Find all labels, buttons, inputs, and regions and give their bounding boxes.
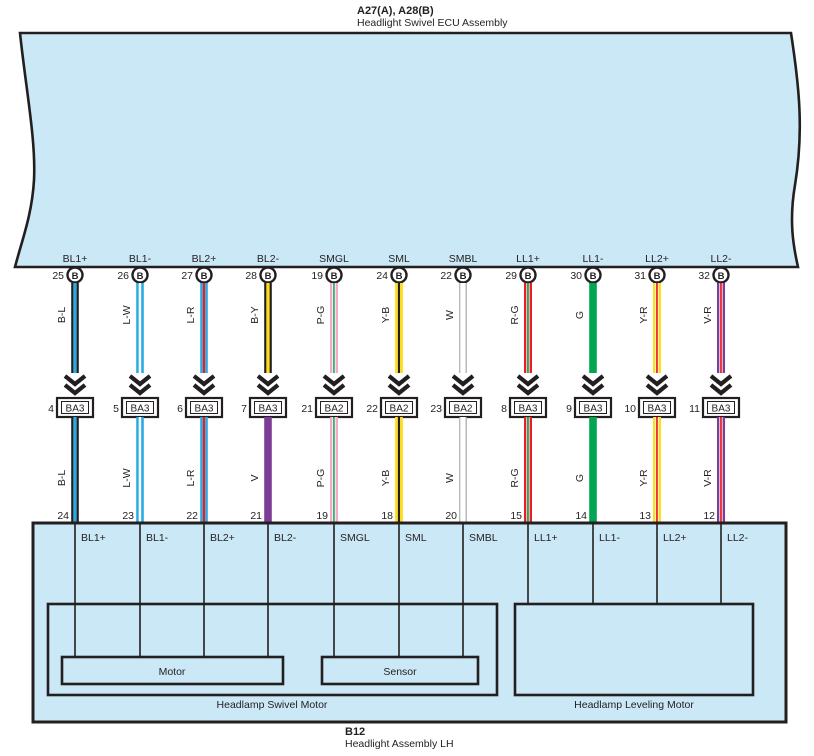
wire-upper-segment xyxy=(139,283,141,380)
wire-upper-segment xyxy=(653,283,655,380)
wire-lower-segment xyxy=(722,417,723,524)
ecu-pin-letter: B xyxy=(265,271,272,282)
wire-upper-segment xyxy=(658,283,659,380)
assembly-pin-number: 19 xyxy=(316,510,328,522)
wire-upper-segment xyxy=(71,283,73,380)
wire-color-code-upper: Y-B xyxy=(380,307,392,324)
inline-connector-pin: 4 xyxy=(48,403,54,415)
inline-connector-label: BA3 xyxy=(66,404,85,415)
ecu-assembly-title: Headlight Swivel ECU Assembly xyxy=(357,17,508,29)
ecu-pin-letter: B xyxy=(525,271,532,282)
wire-lower-segment xyxy=(530,417,532,524)
assembly-pin-number: 14 xyxy=(575,510,587,522)
inline-connector-pin: 5 xyxy=(113,403,119,415)
ecu-pin-letter: B xyxy=(654,271,661,282)
wire-upper-segment xyxy=(136,283,139,380)
ecu-pin-number: 24 xyxy=(376,270,388,282)
wire-color-code-lower: R-G xyxy=(509,468,521,487)
wire-color-code-upper: P-G xyxy=(315,306,327,325)
wire-color-code-upper: G xyxy=(574,311,586,319)
motor-label: Motor xyxy=(159,666,186,678)
wire-upper-segment xyxy=(655,283,656,380)
wire-lower-segment xyxy=(336,417,338,524)
wire-color-code-lower: Y-B xyxy=(380,470,392,487)
assembly-pin-number: 20 xyxy=(445,510,457,522)
inline-connector-label: BA3 xyxy=(712,404,731,415)
wire-lower-segment xyxy=(400,417,403,524)
wire-upper-segment xyxy=(264,283,266,380)
ecu-pin-number: 25 xyxy=(52,270,64,282)
wire-lower-segment xyxy=(335,417,336,524)
assembly-pin-number: 13 xyxy=(639,510,651,522)
ecu-signal-label: BL1+ xyxy=(63,253,88,265)
wire-color-code-lower: P-G xyxy=(315,469,327,488)
assembly-cell-label: BL2+ xyxy=(210,532,235,544)
wire-upper-segment xyxy=(400,283,403,380)
ecu-pin-number: 26 xyxy=(117,270,129,282)
wiring-diagram-page: A27(A), A28(B) Headlight Swivel ECU Asse… xyxy=(0,0,814,756)
inline-connector-label: BA2 xyxy=(454,404,473,415)
wire-upper-segment xyxy=(717,283,719,380)
wiring-diagram-canvas: A27(A), A28(B) Headlight Swivel ECU Asse… xyxy=(0,0,814,756)
wire-lower-segment xyxy=(529,417,530,524)
ecu-pin-number: 31 xyxy=(634,270,646,282)
wire-lower-segment xyxy=(526,417,527,524)
ecu-signal-label: SMBL xyxy=(449,253,478,265)
wire-upper-segment xyxy=(203,283,205,380)
wire-lower-segment xyxy=(333,417,335,524)
wire-color-code-upper: R-G xyxy=(509,305,521,324)
wire-color-code-upper: V-R xyxy=(702,306,714,324)
assembly-cell-label: LL2- xyxy=(727,532,749,544)
wire-upper-segment xyxy=(723,283,725,380)
wire-upper-segment xyxy=(270,283,272,380)
wire-upper-segment xyxy=(526,283,527,380)
wire-lower-segment xyxy=(589,417,597,524)
inline-connector-pin: 23 xyxy=(430,403,442,415)
wire-upper-segment xyxy=(527,283,529,380)
inline-connector-pin: 10 xyxy=(624,403,636,415)
assembly-cell-label: SML xyxy=(405,532,427,544)
wire-color-code-lower: Y-R xyxy=(638,469,650,487)
leveling-motor-label: Headlamp Leveling Motor xyxy=(574,699,694,711)
wire-color-code-lower: L-R xyxy=(185,469,197,486)
wire-lower-segment xyxy=(466,417,467,524)
inline-connector-label: BA3 xyxy=(519,404,538,415)
wire-lower-segment xyxy=(723,417,725,524)
wire-lower-segment xyxy=(460,417,465,524)
wire-color-code-upper: B-L xyxy=(56,307,68,324)
ecu-pin-letter: B xyxy=(72,271,79,282)
ecu-connector-code: A27(A), A28(B) xyxy=(357,5,434,17)
assembly-pin-number: 23 xyxy=(122,510,134,522)
wire-column-BL1-: BL1-26BL-W5BA3L-W23 xyxy=(113,253,158,524)
wire-upper-segment xyxy=(77,283,79,380)
wire-column-LL1-: LL1-30BG9BA3G14 xyxy=(566,253,611,524)
wire-upper-segment xyxy=(205,283,208,380)
ecu-signal-label: SML xyxy=(388,253,410,265)
ecu-signal-label: LL2- xyxy=(710,253,732,265)
wire-lower-segment xyxy=(332,417,333,524)
ecu-pin-letter: B xyxy=(396,271,403,282)
wire-color-code-upper: L-W xyxy=(121,305,133,324)
sensor-label: Sensor xyxy=(383,666,417,678)
ecu-pin-letter: B xyxy=(331,271,338,282)
wire-column-LL2-: LL2-32BV-R11BA3V-R12 xyxy=(689,253,739,524)
wire-column-SMBL: SMBL22BW23BA2W20 xyxy=(430,253,481,524)
wire-lower-segment xyxy=(719,417,720,524)
wire-upper-segment xyxy=(460,283,465,380)
wire-lower-segment xyxy=(136,417,139,524)
wire-column-BL2+: BL2+27BL-R6BA3L-R22 xyxy=(177,253,222,524)
inline-connector-pin: 11 xyxy=(689,403,700,415)
wire-color-code-lower: V xyxy=(249,474,261,481)
ecu-pin-number: 28 xyxy=(245,270,257,282)
wire-column-SML: SML24BY-B22BA2Y-B18 xyxy=(366,253,417,524)
wire-lower-segment xyxy=(398,417,400,524)
ecu-signal-label: BL2- xyxy=(257,253,280,265)
assembly-cell-label: LL1- xyxy=(599,532,621,544)
wire-lower-segment xyxy=(720,417,722,524)
ecu-pin-number: 19 xyxy=(311,270,323,282)
assembly-cell-label: LL2+ xyxy=(663,532,687,544)
wire-upper-segment xyxy=(330,283,332,380)
wire-lower-segment xyxy=(524,417,526,524)
headlight-assembly-box xyxy=(33,523,786,722)
wire-lower-segment xyxy=(205,417,208,524)
assembly-title: Headlight Assembly LH xyxy=(345,738,454,750)
wire-lower-segment xyxy=(141,417,144,524)
wire-lower-segment xyxy=(77,417,79,524)
wire-lower-segment xyxy=(659,417,661,524)
wire-lower-segment xyxy=(73,417,76,524)
wire-column-SMGL: SMGL19BP-G21BA2P-G19 xyxy=(301,253,352,524)
assembly-connector-code: B12 xyxy=(345,726,365,738)
ecu-signal-label: LL1- xyxy=(582,253,604,265)
inline-connector-label: BA2 xyxy=(390,404,409,415)
wire-upper-segment xyxy=(398,283,400,380)
wire-column-BL2-: BL2-28BB-Y7BA3V21 xyxy=(241,253,286,524)
wire-upper-segment xyxy=(722,283,723,380)
swivel-motor-label: Headlamp Swivel Motor xyxy=(217,699,328,711)
assembly-cell-label: SMGL xyxy=(340,532,370,544)
wire-lower-segment xyxy=(330,417,332,524)
ecu-signal-label: BL2+ xyxy=(192,253,217,265)
wire-upper-segment xyxy=(719,283,720,380)
inline-connector-label: BA3 xyxy=(259,404,278,415)
wire-column-BL1+: BL1+25BB-L4BA3B-L24 xyxy=(48,253,93,524)
wire-upper-segment xyxy=(459,283,460,380)
inline-connector-label: BA3 xyxy=(131,404,150,415)
wire-upper-segment xyxy=(336,283,338,380)
wire-upper-segment xyxy=(73,283,76,380)
inline-connector-pin: 22 xyxy=(366,403,378,415)
wire-color-code-upper: W xyxy=(444,310,456,320)
wire-lower-segment xyxy=(203,417,205,524)
wire-upper-segment xyxy=(141,283,144,380)
ecu-pin-letter: B xyxy=(590,271,597,282)
inline-connector-pin: 8 xyxy=(501,403,507,415)
ecu-pin-letter: B xyxy=(460,271,467,282)
ecu-pin-letter: B xyxy=(137,271,144,282)
wire-upper-segment xyxy=(720,283,722,380)
wire-lower-segment xyxy=(717,417,719,524)
wire-color-code-upper: B-Y xyxy=(249,306,261,324)
wire-lower-segment xyxy=(527,417,529,524)
ecu-pin-number: 29 xyxy=(505,270,517,282)
wire-column-LL2+: LL2+31BY-R10BA3Y-R13 xyxy=(624,253,675,524)
wire-color-code-lower: L-W xyxy=(121,468,133,487)
wire-column-LL1+: LL1+29BR-G8BA3R-G15 xyxy=(501,253,546,524)
inline-connector-label: BA2 xyxy=(325,404,344,415)
wire-upper-segment xyxy=(395,283,398,380)
ecu-pin-number: 22 xyxy=(440,270,452,282)
assembly-cell-label: BL2- xyxy=(274,532,297,544)
inline-connector-label: BA3 xyxy=(648,404,667,415)
assembly-cell-label: LL1+ xyxy=(534,532,558,544)
wire-upper-segment xyxy=(466,283,467,380)
wire-upper-segment xyxy=(332,283,333,380)
inline-connector-label: BA3 xyxy=(195,404,214,415)
assembly-cell-label: BL1- xyxy=(146,532,169,544)
wire-lower-segment xyxy=(653,417,655,524)
wire-color-code-lower: W xyxy=(444,473,456,483)
wire-upper-segment xyxy=(529,283,530,380)
wire-lower-segment xyxy=(655,417,656,524)
wire-color-code-lower: B-L xyxy=(56,470,68,487)
wire-layer: BL1+25BB-L4BA3B-L24BL1-26BL-W5BA3L-W23BL… xyxy=(48,253,739,524)
ecu-signal-label: LL2+ xyxy=(645,253,669,265)
ecu-pin-number: 30 xyxy=(570,270,582,282)
wire-upper-segment xyxy=(266,283,269,380)
ecu-pin-number: 32 xyxy=(698,270,710,282)
wire-upper-segment xyxy=(333,283,335,380)
assembly-pin-number: 12 xyxy=(703,510,715,522)
ecu-pin-number: 27 xyxy=(181,270,193,282)
wire-lower-segment xyxy=(139,417,141,524)
wire-lower-segment xyxy=(658,417,659,524)
wire-color-code-upper: Y-R xyxy=(638,306,650,324)
wire-lower-segment xyxy=(395,417,398,524)
assembly-cell-label: SMBL xyxy=(469,532,498,544)
ecu-pin-letter: B xyxy=(201,271,208,282)
assembly-pin-number: 24 xyxy=(57,510,69,522)
wire-color-code-lower: V-R xyxy=(702,469,714,487)
inline-connector-pin: 6 xyxy=(177,403,183,415)
assembly-pin-number: 18 xyxy=(381,510,393,522)
wire-color-code-lower: G xyxy=(574,474,586,482)
ecu-assembly-panel xyxy=(15,33,800,267)
assembly-pin-number: 21 xyxy=(250,510,262,522)
wire-lower-segment xyxy=(656,417,658,524)
inline-connector-pin: 9 xyxy=(566,403,572,415)
ecu-signal-label: LL1+ xyxy=(516,253,540,265)
wire-upper-segment xyxy=(659,283,661,380)
wire-upper-segment xyxy=(524,283,526,380)
assembly-pin-number: 15 xyxy=(510,510,522,522)
wire-lower-segment xyxy=(200,417,203,524)
ecu-signal-label: BL1- xyxy=(129,253,152,265)
wire-upper-segment xyxy=(335,283,336,380)
ecu-pin-letter: B xyxy=(718,271,725,282)
inline-connector-label: BA3 xyxy=(584,404,603,415)
wire-lower-segment xyxy=(264,417,272,524)
wire-color-code-upper: L-R xyxy=(185,306,197,323)
inline-connector-pin: 21 xyxy=(301,403,313,415)
ecu-signal-label: SMGL xyxy=(319,253,349,265)
wire-lower-segment xyxy=(71,417,73,524)
assembly-cell-label: BL1+ xyxy=(81,532,106,544)
wire-upper-segment xyxy=(589,283,597,380)
inline-connector-pin: 7 xyxy=(241,403,247,415)
wire-upper-segment xyxy=(656,283,658,380)
wire-lower-segment xyxy=(459,417,460,524)
wire-upper-segment xyxy=(200,283,203,380)
wire-upper-segment xyxy=(530,283,532,380)
assembly-pin-number: 22 xyxy=(186,510,198,522)
